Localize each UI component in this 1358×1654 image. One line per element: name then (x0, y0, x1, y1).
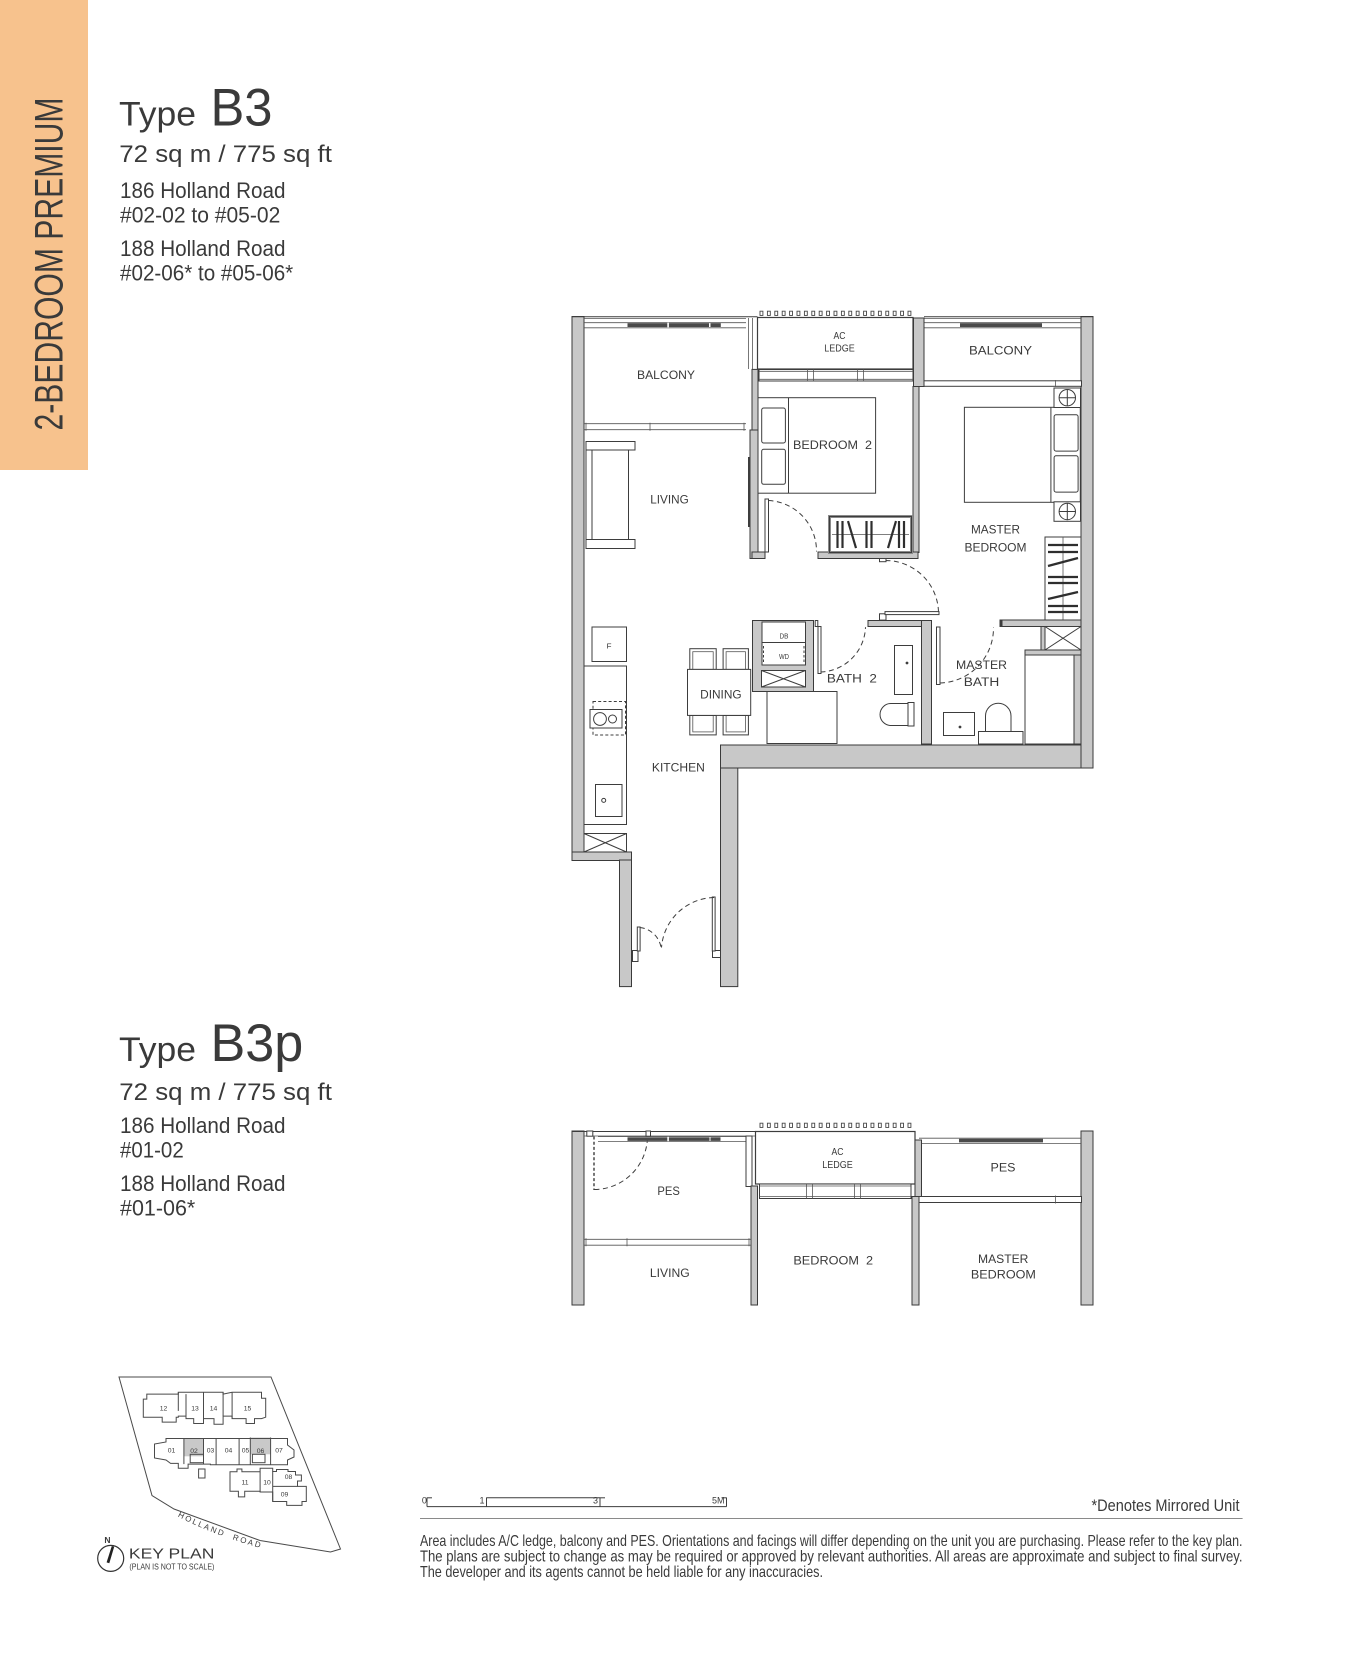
svg-text:MASTER: MASTER (978, 1254, 1028, 1266)
svg-text:F: F (607, 644, 612, 651)
svg-text:BALCONY: BALCONY (637, 370, 695, 382)
svg-text:0: 0 (422, 1496, 427, 1506)
svg-text:LIVING: LIVING (650, 495, 689, 507)
svg-text:(PLAN IS NOT TO SCALE): (PLAN IS NOT TO SCALE) (129, 1563, 214, 1572)
svg-text:#02-06* to #05-06*: #02-06* to #05-06* (120, 261, 294, 286)
svg-text:BEDROOM 2: BEDROOM 2 (793, 440, 872, 452)
svg-text:BEDROOM: BEDROOM (971, 1270, 1036, 1282)
svg-text:LEDGE: LEDGE (824, 343, 855, 355)
svg-text:Area includes A/C ledge, balco: Area includes A/C ledge, balcony and PES… (420, 1533, 1243, 1550)
svg-text:DB: DB (780, 634, 789, 641)
svg-text:WD: WD (779, 654, 789, 661)
svg-text:BALCONY: BALCONY (969, 346, 1032, 358)
svg-text:DINING: DINING (700, 690, 742, 702)
svg-text:07: 07 (275, 1448, 283, 1455)
svg-text:3: 3 (593, 1496, 598, 1506)
svg-text:72 sq m / 775 sq ft: 72 sq m / 775 sq ft (119, 141, 332, 168)
svg-text:AC: AC (834, 330, 846, 342)
svg-text:MASTER: MASTER (971, 525, 1020, 537)
svg-text:186 Holland Road: 186 Holland Road (120, 178, 286, 203)
svg-text:1: 1 (479, 1496, 484, 1506)
svg-text:09: 09 (281, 1492, 289, 1499)
svg-text:#01-02: #01-02 (120, 1138, 184, 1163)
svg-text:15: 15 (244, 1406, 252, 1413)
svg-text:02: 02 (190, 1448, 198, 1455)
svg-text:*Denotes Mirrored Unit: *Denotes Mirrored Unit (1092, 1496, 1240, 1515)
svg-text:N: N (104, 1535, 110, 1545)
svg-text:06: 06 (257, 1448, 265, 1455)
svg-text:The developer and its agents c: The developer and its agents cannot be h… (420, 1564, 823, 1581)
svg-text:08: 08 (285, 1474, 293, 1481)
svg-text:03: 03 (207, 1448, 215, 1455)
svg-text:LIVING: LIVING (650, 1268, 690, 1280)
svg-text:PES: PES (991, 1162, 1016, 1174)
svg-text:04: 04 (225, 1448, 233, 1455)
svg-text:13: 13 (191, 1406, 199, 1413)
svg-text:14: 14 (210, 1406, 218, 1413)
svg-text:188 Holland Road: 188 Holland Road (120, 236, 286, 261)
svg-text:186 Holland Road: 186 Holland Road (120, 1113, 286, 1138)
svg-text:AC: AC (832, 1146, 844, 1158)
svg-text:72 sq m / 775 sq ft: 72 sq m / 775 sq ft (119, 1079, 332, 1106)
svg-text:10: 10 (263, 1480, 271, 1487)
svg-text:B3: B3 (211, 79, 273, 138)
svg-text:12: 12 (160, 1406, 168, 1413)
svg-text:MASTER: MASTER (956, 660, 1007, 672)
svg-text:01: 01 (168, 1448, 176, 1455)
svg-text:188 Holland Road: 188 Holland Road (120, 1171, 286, 1196)
svg-text:The plans are subject to chang: The plans are subject to change as may b… (420, 1549, 1243, 1566)
svg-text:#02-02 to #05-02: #02-02 to #05-02 (120, 203, 280, 228)
svg-text:BEDROOM: BEDROOM (965, 543, 1027, 555)
svg-text:BATH: BATH (964, 677, 1000, 689)
svg-text:LEDGE: LEDGE (822, 1159, 853, 1171)
svg-text:Type: Type (119, 96, 196, 134)
svg-text:#01-06*: #01-06* (120, 1196, 196, 1221)
svg-text:11: 11 (241, 1480, 248, 1487)
svg-text:BATH 2: BATH 2 (827, 674, 877, 686)
svg-text:05: 05 (242, 1448, 250, 1455)
svg-text:5M: 5M (712, 1496, 725, 1506)
svg-text:KEY PLAN: KEY PLAN (129, 1546, 215, 1563)
svg-text:KITCHEN: KITCHEN (652, 763, 705, 775)
svg-text:2-BEDROOM PREMIUM: 2-BEDROOM PREMIUM (28, 98, 72, 431)
svg-text:B3p: B3p (211, 1014, 304, 1073)
svg-text:BEDROOM 2: BEDROOM 2 (793, 1255, 873, 1267)
svg-text:PES: PES (657, 1186, 680, 1198)
svg-text:Type: Type (119, 1031, 196, 1069)
